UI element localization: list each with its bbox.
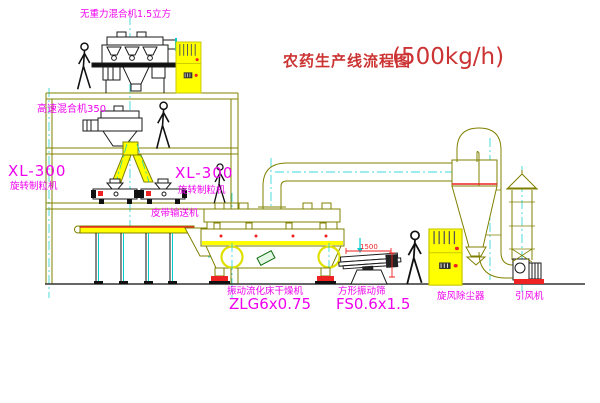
belt-conveyor xyxy=(75,226,195,284)
person-second-floor-icon xyxy=(157,102,170,149)
exhaust-stack xyxy=(506,170,538,262)
induced-draft-fan xyxy=(513,259,544,284)
screen-model-label: FS0.6x1.5 xyxy=(336,297,410,312)
dryer-model-label: ZLG6x0.75 xyxy=(229,297,311,312)
pipe-elbow xyxy=(479,252,513,278)
fan-label: 引风机 xyxy=(515,292,544,302)
fluid-bed-dryer xyxy=(185,203,344,284)
diagram-capacity: (500kg/h) xyxy=(392,44,504,70)
high-speed-mixer-label: 高速混合机350 xyxy=(37,105,106,115)
exhaust-duct xyxy=(258,163,452,209)
granulator-left-model-label: XL-300 xyxy=(8,164,66,179)
granulator-mid-model-label: XL-300 xyxy=(175,166,233,181)
belt-conveyor-label: 皮带输送机 xyxy=(151,209,199,219)
granulator-mid-label: 旋转制粒机 xyxy=(178,186,226,196)
control-cabinet-roof xyxy=(176,42,201,93)
rotary-granulator-left xyxy=(91,179,139,204)
person-ground-icon xyxy=(407,231,421,284)
dimension-1500: 1500 xyxy=(360,243,378,251)
person-roof-icon xyxy=(78,43,91,89)
granulator-left-label: 旋转制粒机 xyxy=(10,182,58,192)
gravity-mixer-label: 无重力混合机1.5立方 xyxy=(80,10,171,20)
cyclone-label: 旋风除尘器 xyxy=(437,292,485,302)
gravity-free-mixer xyxy=(92,32,179,93)
process-flow-diagram: 无重力混合机1.5立方 农药生产线流程图 (500kg/h) 高速混合机350 … xyxy=(0,0,600,403)
control-cabinet-ground xyxy=(429,229,462,285)
